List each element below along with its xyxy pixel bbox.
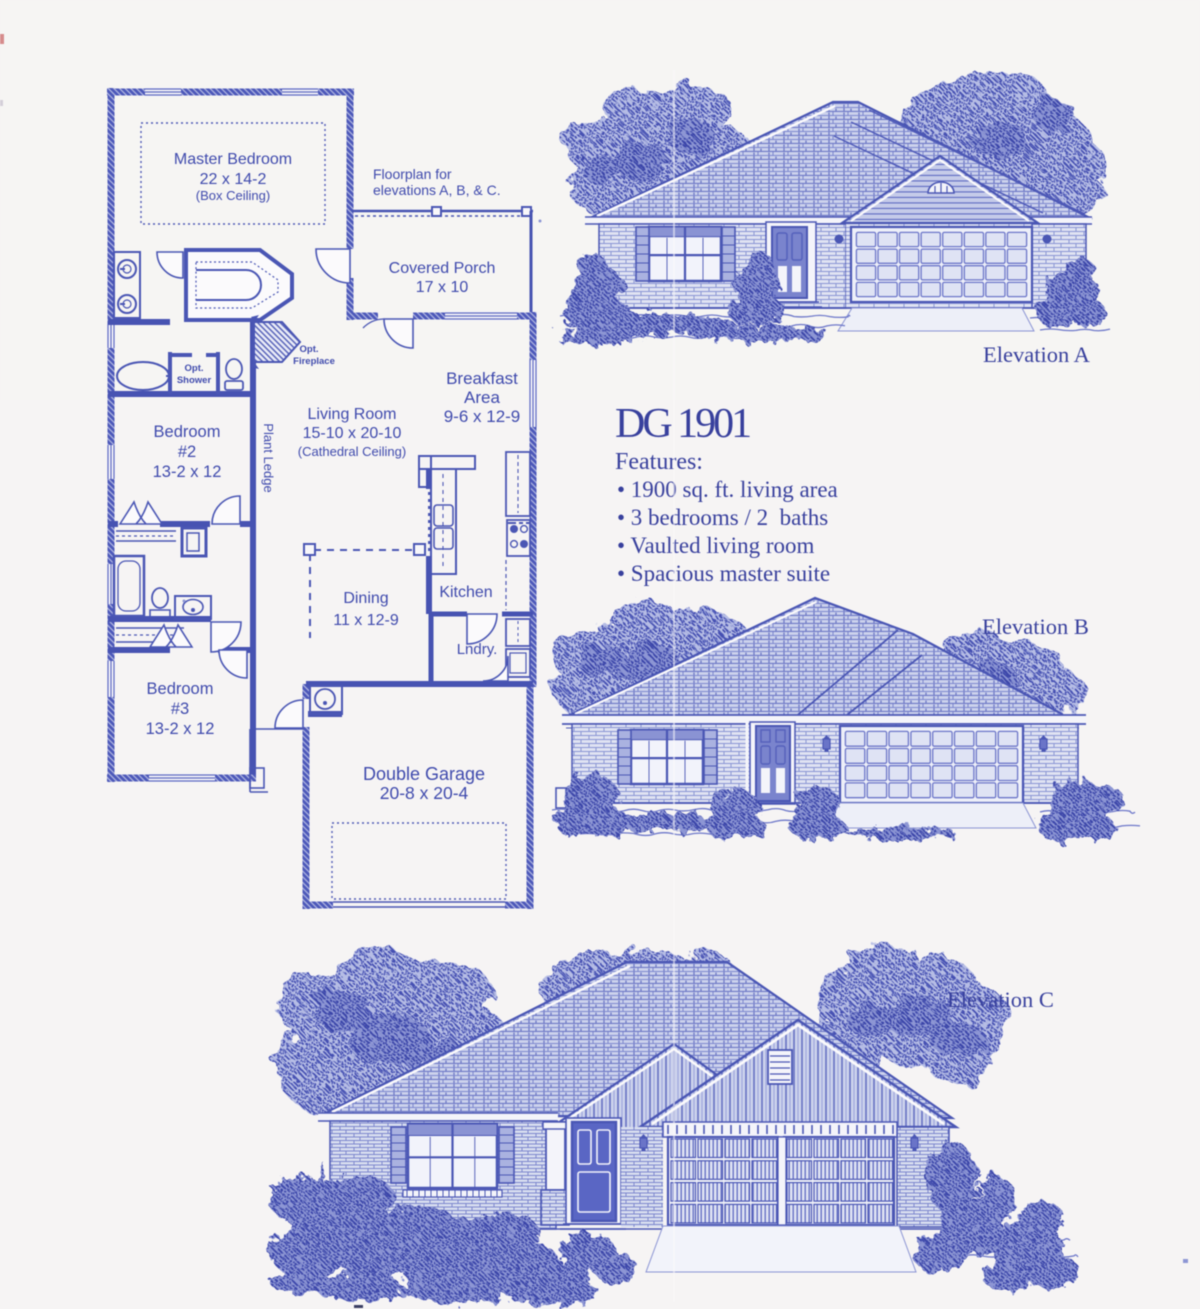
svg-text:Elevation C: Elevation C (947, 987, 1054, 1012)
svg-text:Floorplan for: Floorplan for (373, 166, 452, 182)
svg-text:11 x 12-9: 11 x 12-9 (333, 612, 399, 629)
svg-text:Plant Ledge: Plant Ledge (261, 423, 276, 492)
svg-text:Dining: Dining (343, 590, 388, 607)
svg-text:Features:: Features: (615, 449, 703, 475)
svg-text:Area: Area (464, 388, 500, 407)
svg-text:Opt.: Opt. (185, 363, 204, 374)
svg-text:#2: #2 (178, 443, 196, 461)
svg-text:15-10 x 20-10: 15-10 x 20-10 (303, 425, 402, 442)
svg-text:17 x 10: 17 x 10 (416, 279, 469, 296)
svg-text:Breakfast: Breakfast (446, 369, 518, 388)
svg-text:• 3 bedrooms / 2 baths: • 3 bedrooms / 2 baths (617, 505, 828, 530)
svg-text:#3: #3 (171, 700, 189, 718)
svg-text:(Cathedral Ceiling): (Cathedral Ceiling) (298, 444, 406, 459)
svg-text:elevations A, B, & C.: elevations A, B, & C. (373, 182, 501, 198)
svg-text:• Vaulted living room: • Vaulted living room (617, 533, 814, 558)
svg-text:Shower: Shower (177, 375, 212, 386)
svg-text:Opt.: Opt. (300, 344, 319, 355)
svg-text:Master Bedroom: Master Bedroom (174, 151, 292, 168)
svg-text:Lndry.: Lndry. (457, 641, 498, 658)
svg-text:Bedroom: Bedroom (154, 423, 221, 441)
svg-text:22 x 14-2: 22 x 14-2 (200, 171, 267, 188)
svg-text:Elevation A: Elevation A (983, 342, 1091, 367)
svg-text:13-2 x 12: 13-2 x 12 (146, 720, 215, 738)
svg-text:Kitchen: Kitchen (439, 584, 492, 601)
svg-text:Fireplace: Fireplace (293, 356, 335, 367)
svg-text:Double Garage: Double Garage (363, 764, 485, 784)
svg-text:13-2 x 12: 13-2 x 12 (153, 463, 222, 481)
svg-text:Covered Porch: Covered Porch (389, 260, 496, 277)
svg-text:• Spacious master suite: • Spacious master suite (617, 561, 830, 586)
svg-text:Elevation B: Elevation B (982, 614, 1089, 639)
svg-text:DG 1901: DG 1901 (615, 401, 750, 447)
svg-text:(Box Ceiling): (Box Ceiling) (196, 188, 270, 203)
svg-text:Bedroom: Bedroom (147, 680, 214, 698)
svg-text:• 1900 sq. ft. living area: • 1900 sq. ft. living area (617, 477, 838, 502)
svg-text:9-6 x 12-9: 9-6 x 12-9 (444, 407, 521, 426)
svg-text:Living Room: Living Room (308, 406, 397, 423)
svg-text:20-8 x 20-4: 20-8 x 20-4 (380, 783, 469, 803)
